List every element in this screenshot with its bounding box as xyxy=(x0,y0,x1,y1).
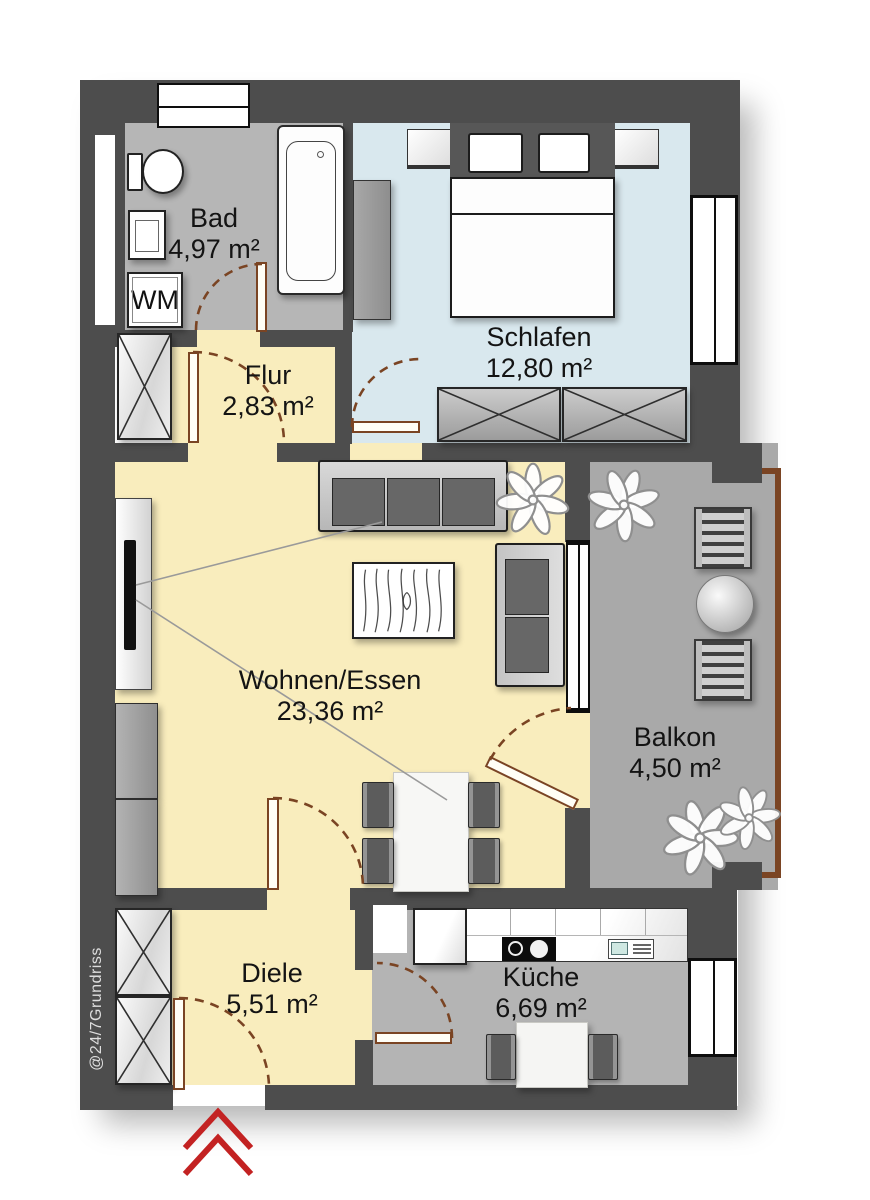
kitchen-chair-icon xyxy=(588,1034,618,1080)
bedroom-dresser-icon xyxy=(562,387,687,442)
wall-kueche-west-upper xyxy=(355,910,373,970)
wall-flur-south xyxy=(115,443,188,462)
door-kueche xyxy=(375,1032,452,1044)
wall-wohnen-east-lower xyxy=(565,808,590,888)
wall-bottom-left xyxy=(80,1085,173,1110)
window-schlafen xyxy=(690,195,738,365)
toilet-tank-icon xyxy=(127,153,143,191)
kitchen-sink-icon xyxy=(608,939,654,959)
door-entrance xyxy=(173,998,185,1090)
door-wohnen-diele xyxy=(267,798,279,890)
dining-chair-icon xyxy=(362,782,394,828)
door-schlafen xyxy=(352,421,420,433)
room-label-kueche: Küche 6,69 m² xyxy=(495,962,587,1024)
washing-machine-label: WM xyxy=(131,285,179,316)
tv-icon xyxy=(124,540,136,650)
flur-wardrobe-icon xyxy=(117,333,172,440)
room-label-schlafen: Schlafen 12,80 m² xyxy=(486,322,593,384)
watermark: @24/7Grundriss xyxy=(88,934,106,1084)
entrance-arrow-icon xyxy=(185,1138,251,1174)
room-area: 4,97 m² xyxy=(168,234,260,265)
kitchen-niche xyxy=(373,905,407,953)
room-label-diele: Diele 5,51 m² xyxy=(226,958,318,1020)
room-area: 4,50 m² xyxy=(629,753,721,784)
room-name: Bad xyxy=(168,203,260,234)
sofa-three-seat-icon xyxy=(318,460,508,532)
dining-table-icon xyxy=(393,772,469,892)
room-label-balkon: Balkon 4,50 m² xyxy=(629,722,721,784)
room-area: 6,69 m² xyxy=(495,993,587,1024)
room-name: Schlafen xyxy=(486,322,593,353)
diele-wardrobe-icon xyxy=(115,908,172,996)
room-area: 12,80 m² xyxy=(486,353,593,384)
kitchen-table-icon xyxy=(516,1022,588,1088)
toilet-icon xyxy=(142,149,184,194)
room-area: 2,83 m² xyxy=(222,391,314,422)
room-label-bad: Bad 4,97 m² xyxy=(168,203,260,265)
room-label-flur: Flur 2,83 m² xyxy=(222,360,314,422)
wall-bad-south-right xyxy=(260,330,352,347)
double-bed-icon xyxy=(450,177,615,318)
room-area: 23,36 m² xyxy=(239,696,422,727)
wall-diele-north xyxy=(80,888,267,910)
wall-balkon-stub-top xyxy=(712,462,762,483)
room-name: Küche xyxy=(495,962,587,993)
balcony-railing xyxy=(775,468,781,878)
dining-chair-icon xyxy=(468,838,500,884)
balcony-chair-icon xyxy=(694,507,752,569)
kitchen-chair-icon xyxy=(486,1034,516,1080)
room-name: Wohnen/Essen xyxy=(239,665,422,696)
room-name: Balkon xyxy=(629,722,721,753)
coffee-table-icon xyxy=(352,562,455,639)
room-label-wohnen: Wohnen/Essen 23,36 m² xyxy=(239,665,422,727)
door-flur xyxy=(188,352,199,443)
wall-balkon-stub-bottom xyxy=(712,862,762,890)
washing-machine-icon: WM xyxy=(127,272,183,328)
dining-chair-icon xyxy=(362,838,394,884)
nightstand-icon xyxy=(407,129,453,169)
balcony-table-icon xyxy=(696,575,754,633)
entrance-arrow-icon xyxy=(185,1112,251,1148)
wall-kueche-west-lower xyxy=(355,1040,373,1085)
sofa-two-seat-icon xyxy=(495,543,565,687)
nightstand-icon xyxy=(613,129,659,169)
wall-flur-east xyxy=(335,347,352,444)
cabinet-icon xyxy=(115,703,158,799)
bathroom-sink-icon xyxy=(128,210,166,260)
pillow-icon xyxy=(538,133,590,173)
wall-wohnen-east-upper xyxy=(565,462,590,542)
bedroom-dresser-icon xyxy=(437,387,561,442)
dining-chair-icon xyxy=(468,782,500,828)
room-area: 5,51 m² xyxy=(226,989,318,1020)
cooktop-icon xyxy=(502,937,556,961)
kitchen-counter-icon xyxy=(467,908,688,962)
cabinet-icon xyxy=(115,799,158,896)
balcony-chair-icon xyxy=(694,639,752,701)
room-name: Flur xyxy=(222,360,314,391)
bedroom-wardrobe-icon xyxy=(353,180,391,320)
window-kueche xyxy=(688,958,737,1057)
room-name: Diele xyxy=(226,958,318,989)
wall-bottom-main xyxy=(265,1085,737,1110)
pillow-icon xyxy=(468,133,523,173)
wall-shaft xyxy=(95,135,115,325)
kitchen-tall-cabinet-icon xyxy=(413,908,467,965)
door-bad xyxy=(256,262,267,332)
window-bad xyxy=(157,83,250,128)
window-wohnen-balkon xyxy=(566,540,590,713)
floor-plan: WM xyxy=(0,0,870,1200)
diele-wardrobe-icon xyxy=(115,996,172,1085)
bathtub-icon xyxy=(277,125,345,295)
